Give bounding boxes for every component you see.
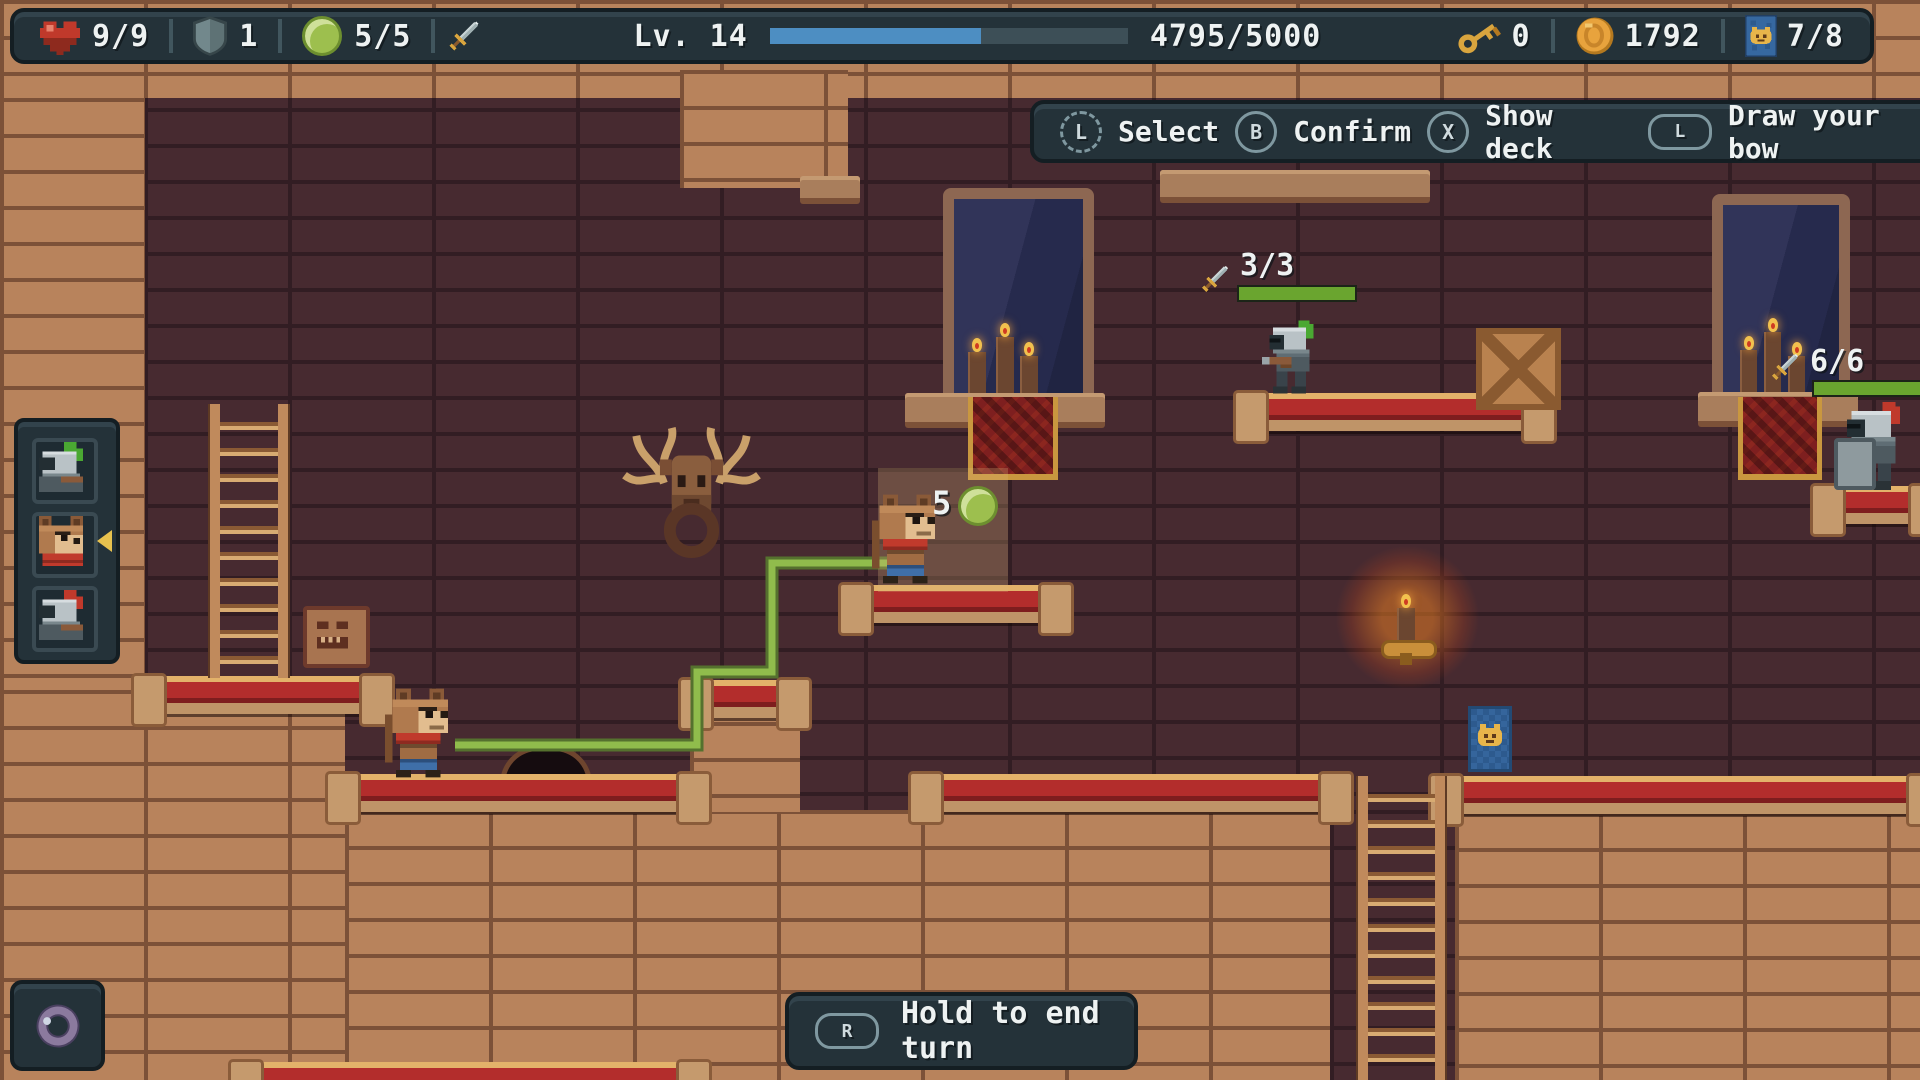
prompt-draw-bow-label: Draw your bow bbox=[1728, 99, 1920, 165]
end-turn-button[interactable]: R Hold to end turn bbox=[785, 992, 1138, 1070]
enemy-hp-text: 6/6 bbox=[1810, 344, 1864, 379]
hud-divider bbox=[278, 19, 282, 53]
coin-icon bbox=[1575, 16, 1615, 56]
xp-text: 4795/5000 bbox=[1150, 19, 1322, 54]
enemy-hp-bar bbox=[1237, 285, 1357, 302]
hud-bar: 9/9 1 5/5 Lv. 14 4795/5000 0 bbox=[10, 8, 1874, 64]
end-turn-label: Hold to end turn bbox=[901, 996, 1108, 1066]
turn-order-slot-bear-active[interactable] bbox=[32, 512, 98, 578]
turn-order-slot-knight-green[interactable] bbox=[32, 438, 98, 504]
turn-order-panel bbox=[14, 418, 120, 664]
energy-value: 5/5 bbox=[354, 19, 411, 54]
xp-fill bbox=[770, 28, 981, 44]
enemy-hp-bar bbox=[1812, 380, 1920, 397]
keys-value: 0 bbox=[1512, 19, 1531, 54]
prompt-select-label: Select bbox=[1118, 115, 1219, 148]
knight-shield bbox=[1834, 438, 1876, 490]
level-label: Lv. 14 bbox=[633, 19, 747, 54]
heart-icon bbox=[40, 18, 80, 55]
move-cost-value: 5 bbox=[932, 484, 951, 522]
armor-value: 1 bbox=[239, 19, 258, 54]
x-button-icon[interactable]: X bbox=[1427, 111, 1469, 153]
ring-icon bbox=[23, 991, 92, 1060]
hud-divider bbox=[1551, 19, 1555, 53]
weapon-sword-icon bbox=[445, 16, 485, 56]
prompt-bar: L Select B Confirm X Show deck L Draw yo… bbox=[1030, 100, 1920, 163]
deck-count-value: 7/8 bbox=[1787, 19, 1844, 54]
shield-icon bbox=[193, 16, 227, 56]
hp-value: 9/9 bbox=[92, 19, 149, 54]
deck-card-icon[interactable] bbox=[1745, 15, 1777, 57]
prompt-show-deck-label: Show deck bbox=[1485, 99, 1632, 165]
equipment-slot[interactable] bbox=[10, 980, 105, 1071]
bear-hero[interactable] bbox=[385, 688, 459, 778]
energy-orb-icon bbox=[302, 16, 342, 56]
key-icon bbox=[1451, 11, 1506, 62]
enemy-knight-green[interactable] bbox=[1262, 320, 1328, 394]
stick-button-icon[interactable]: L bbox=[1060, 111, 1102, 153]
enemy-hp-text: 3/3 bbox=[1240, 248, 1294, 283]
prompt-confirm-label: Confirm bbox=[1293, 115, 1411, 148]
xp-bar bbox=[770, 28, 1128, 44]
hud-divider bbox=[1721, 19, 1725, 53]
energy-cost-orb bbox=[958, 486, 998, 526]
enemy-knight-armored[interactable] bbox=[1838, 402, 1918, 490]
r-shoulder-button-icon: R bbox=[815, 1013, 879, 1049]
hud-divider bbox=[431, 19, 435, 53]
coins-value: 1792 bbox=[1625, 19, 1701, 54]
hud-divider bbox=[169, 19, 173, 53]
turn-order-slot-knight-red[interactable] bbox=[32, 586, 98, 652]
b-button-icon[interactable]: B bbox=[1235, 111, 1277, 153]
game-screen: 5 3/3 6/6 bbox=[0, 0, 1920, 1080]
active-unit-arrow bbox=[97, 530, 112, 552]
l-shoulder-button-icon[interactable]: L bbox=[1648, 114, 1712, 150]
